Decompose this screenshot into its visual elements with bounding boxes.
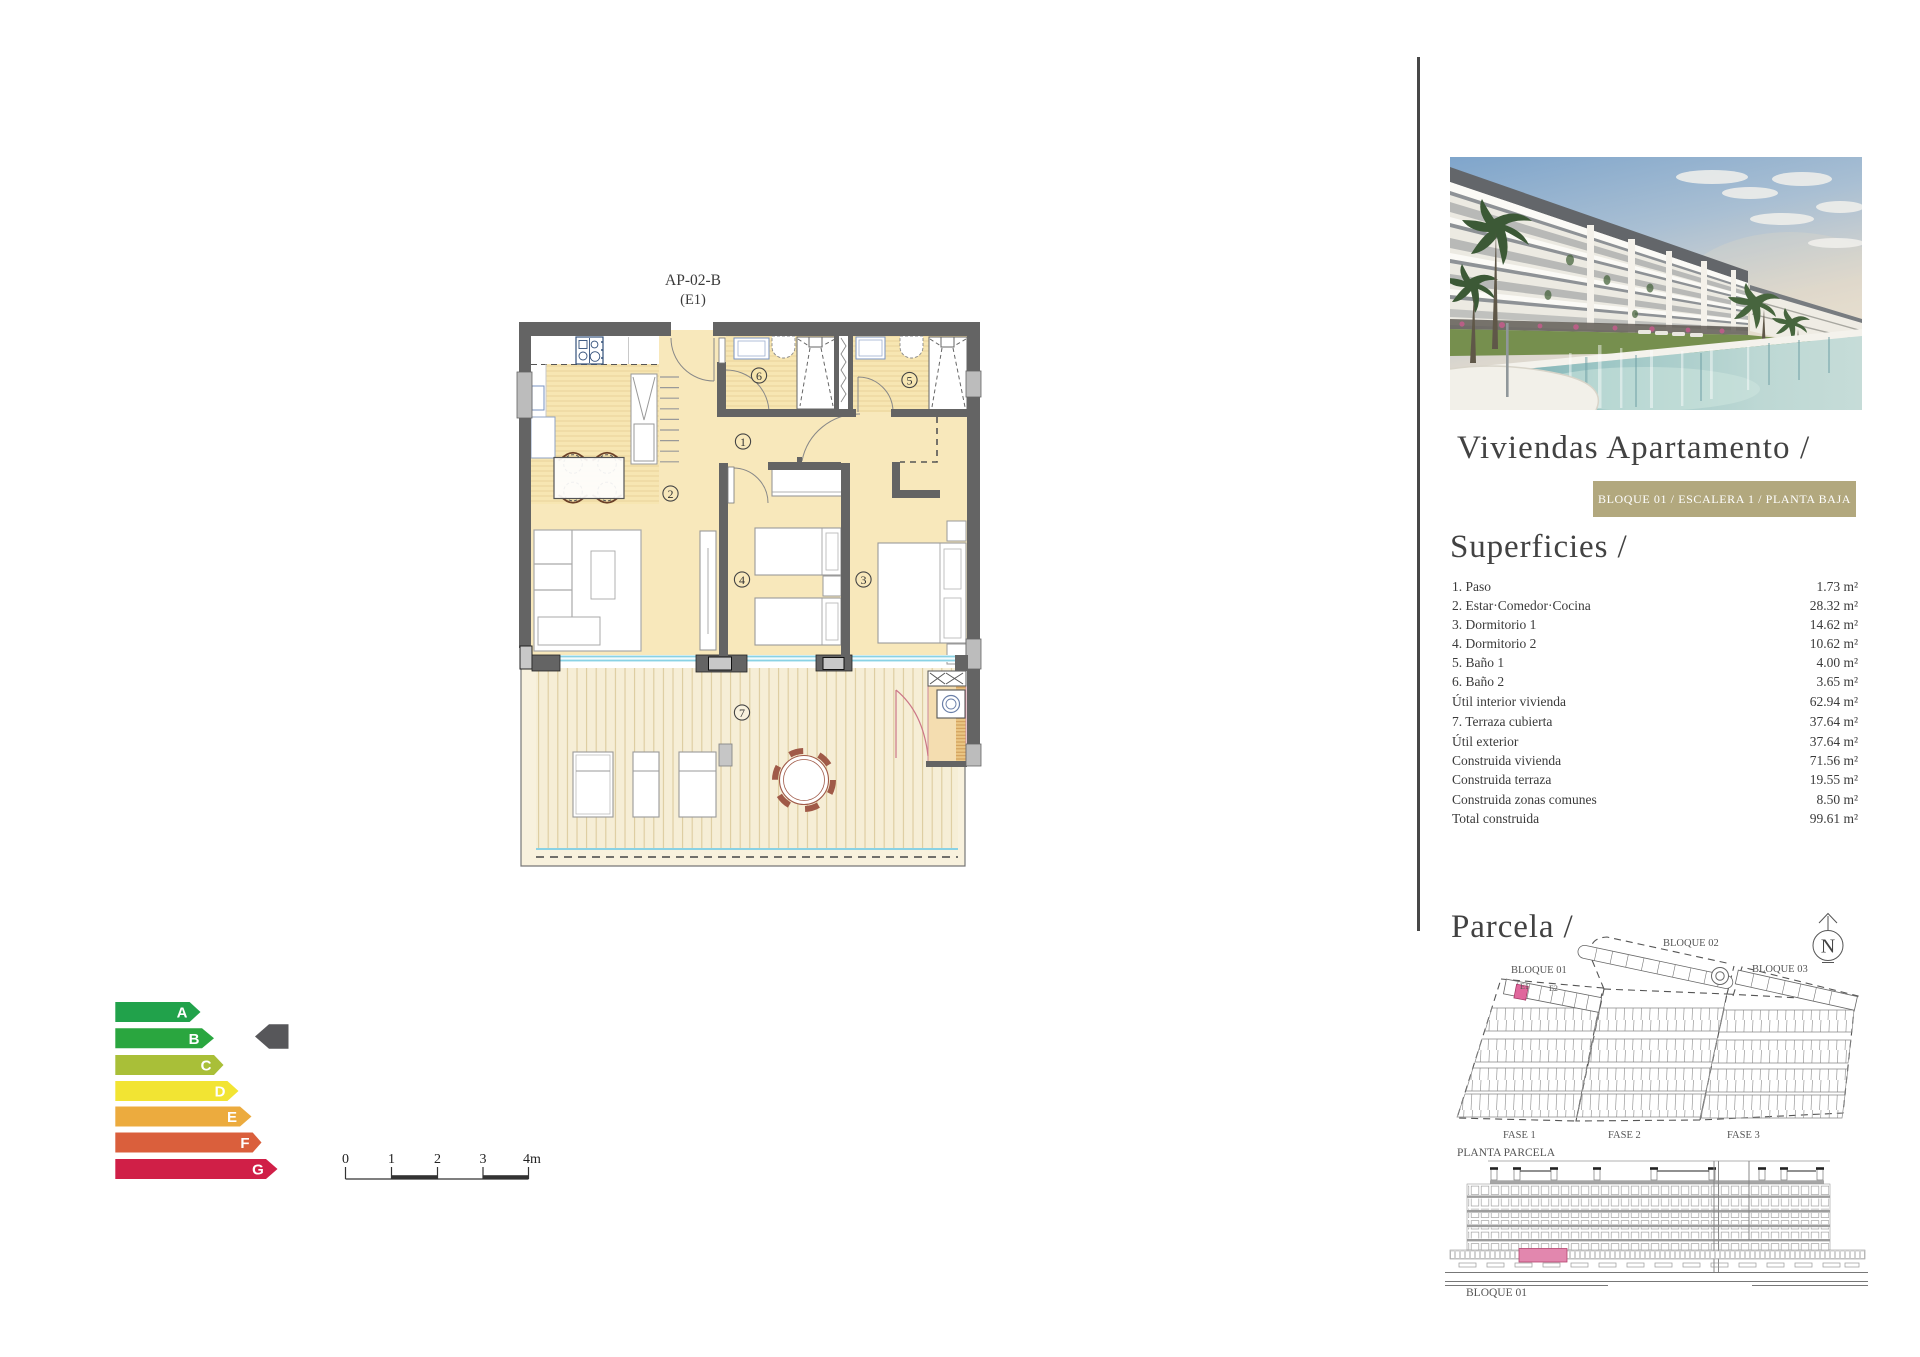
svg-text:A: A xyxy=(177,1005,188,1022)
svg-text:F: F xyxy=(240,1135,249,1152)
svg-text:BLOQUE 01: BLOQUE 01 xyxy=(1466,1287,1527,1299)
svg-text:N: N xyxy=(1821,936,1835,958)
svg-text:1: 1 xyxy=(740,435,746,449)
svg-text:AP-02-B: AP-02-B xyxy=(665,272,721,289)
svg-text:2: 2 xyxy=(668,487,674,501)
svg-text:D: D xyxy=(215,1084,226,1101)
svg-text:7: 7 xyxy=(739,706,745,720)
svg-text:E: E xyxy=(227,1109,237,1126)
svg-text:FASE 3: FASE 3 xyxy=(1727,1130,1760,1141)
svg-text:4m: 4m xyxy=(523,1152,541,1167)
svg-text:G: G xyxy=(252,1162,264,1179)
svg-text:BLOQUE 03: BLOQUE 03 xyxy=(1752,964,1808,975)
svg-text:E1: E1 xyxy=(1520,982,1529,991)
svg-text:C: C xyxy=(201,1058,212,1075)
svg-text:0: 0 xyxy=(342,1152,349,1167)
svg-text:FASE 1: FASE 1 xyxy=(1503,1130,1536,1141)
svg-text:3: 3 xyxy=(861,573,867,587)
svg-text:6: 6 xyxy=(756,369,762,383)
svg-text:2: 2 xyxy=(434,1152,441,1167)
svg-text:B: B xyxy=(189,1031,200,1048)
svg-text:BLOQUE 01: BLOQUE 01 xyxy=(1511,965,1567,976)
svg-text:FASE 2: FASE 2 xyxy=(1608,1130,1641,1141)
svg-text:(E1): (E1) xyxy=(680,292,706,308)
svg-text:BLOQUE 02: BLOQUE 02 xyxy=(1663,938,1719,949)
svg-text:5: 5 xyxy=(907,374,913,388)
svg-text:4: 4 xyxy=(739,573,745,587)
svg-text:3: 3 xyxy=(480,1152,487,1167)
svg-text:1: 1 xyxy=(388,1152,395,1167)
svg-text:E2: E2 xyxy=(1549,984,1558,993)
